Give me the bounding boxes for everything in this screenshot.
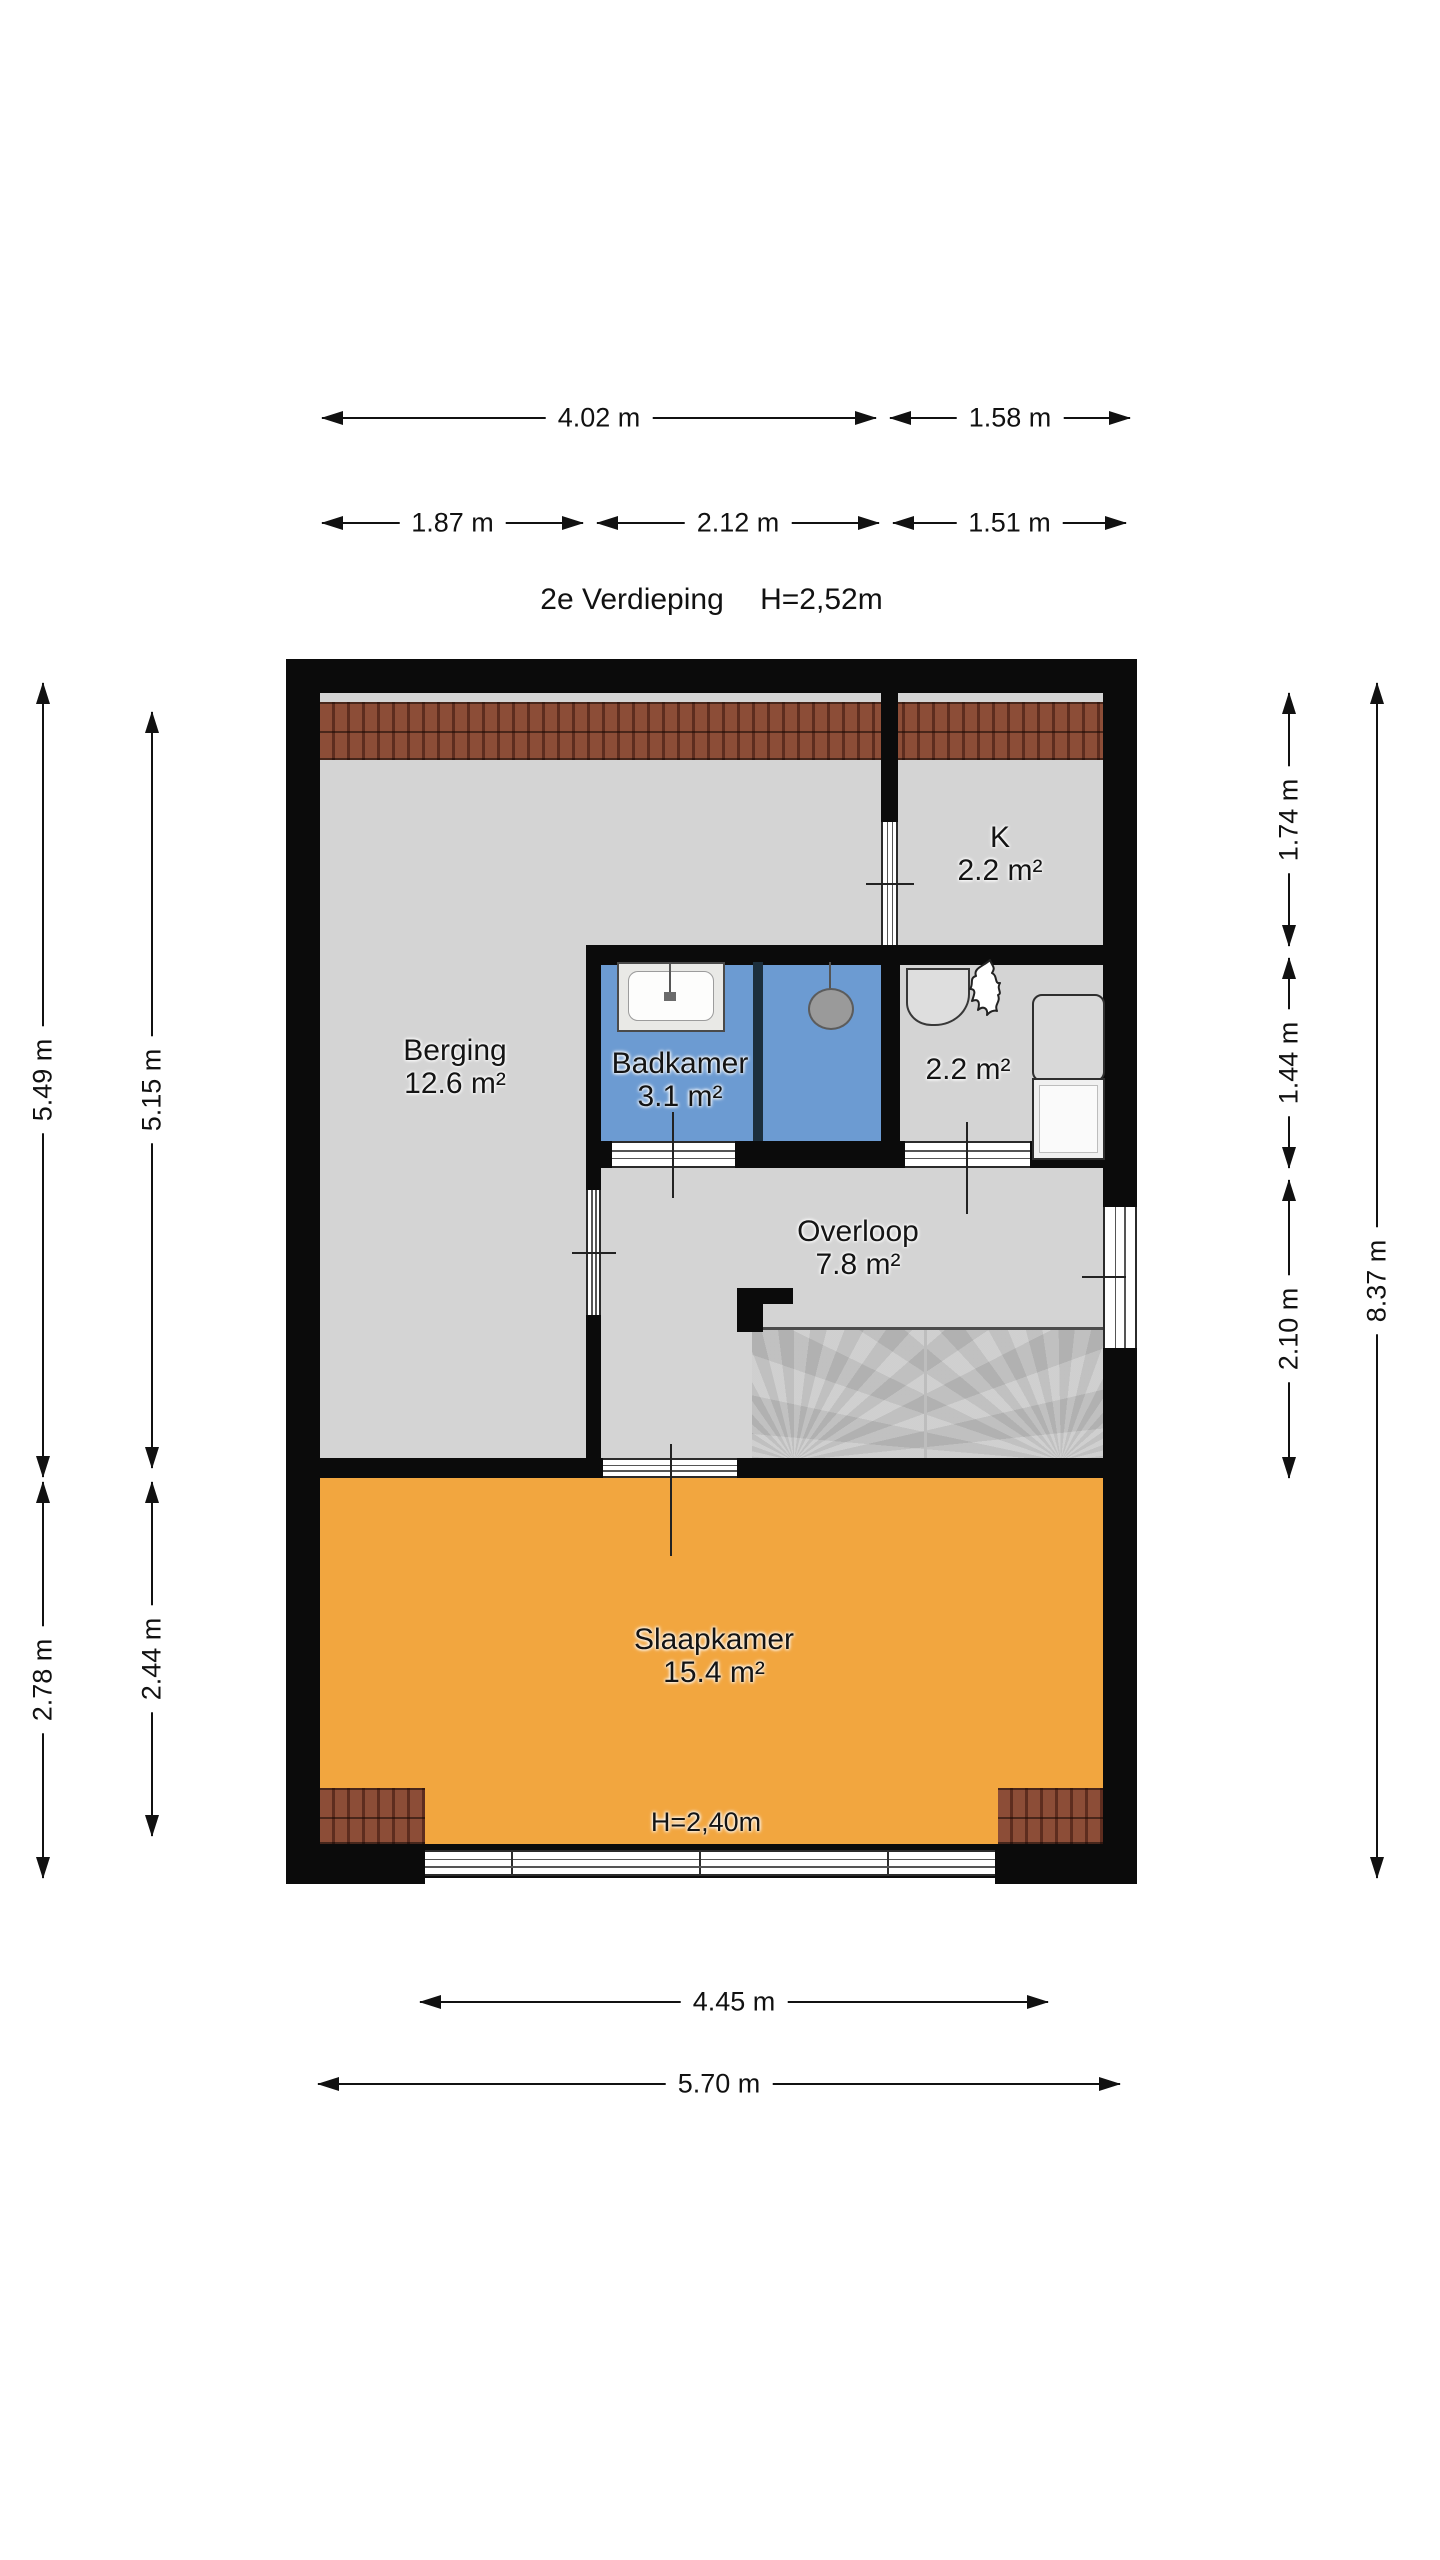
dim-right-outer: 8.37 m bbox=[1362, 683, 1392, 1878]
room-name: Badkamer bbox=[612, 1047, 749, 1080]
arrow-left-icon bbox=[419, 1995, 441, 2009]
dim-value: 1.44 m bbox=[1274, 1010, 1305, 1117]
wall-corner-bottom-left bbox=[286, 1844, 425, 1884]
arrow-left-icon bbox=[321, 516, 343, 530]
dim-left-inner-bottom: 2.44 m bbox=[137, 1482, 167, 1836]
dim-value: 2.78 m bbox=[28, 1627, 59, 1734]
dim-value: 1.87 m bbox=[399, 508, 506, 539]
window-tick bbox=[866, 883, 914, 885]
arrow-right-icon bbox=[1105, 516, 1127, 530]
arrow-up-icon bbox=[145, 711, 159, 733]
arrow-left-icon bbox=[892, 516, 914, 530]
dim-value: 5.49 m bbox=[28, 1027, 59, 1134]
door-tick bbox=[672, 1112, 674, 1198]
dim-left-outer-bottom: 2.78 m bbox=[28, 1482, 58, 1878]
dim-value: 2.10 m bbox=[1274, 1276, 1305, 1383]
dim-bottom-inner: 4.45 m bbox=[420, 1987, 1048, 2017]
room-area: 2.2 m² bbox=[925, 1053, 1010, 1086]
arrow-down-icon bbox=[1370, 1857, 1384, 1879]
wall-corner-bottom-right bbox=[995, 1844, 1137, 1884]
dim-right-inner-1: 1.74 m bbox=[1274, 693, 1304, 946]
dim-value: 4.45 m bbox=[681, 1987, 788, 2018]
sink-icon bbox=[617, 962, 725, 1032]
window-mullion bbox=[511, 1850, 514, 1876]
dim-value: 5.15 m bbox=[137, 1037, 168, 1144]
wall-outer-top bbox=[286, 659, 1137, 693]
slaapkamer-ceiling-height: H=2,40m bbox=[651, 1806, 761, 1839]
arrow-up-icon bbox=[1282, 957, 1296, 979]
dim-value: 4.02 m bbox=[546, 403, 653, 434]
room-area: 3.1 m² bbox=[612, 1080, 749, 1113]
dim-top-inner-3: 1.51 m bbox=[893, 508, 1126, 538]
arrow-right-icon bbox=[855, 411, 877, 425]
dim-top-inner-2: 2.12 m bbox=[597, 508, 879, 538]
room-label-berging: Berging 12.6 m² bbox=[403, 1034, 506, 1100]
room-label-badkamer: Badkamer 3.1 m² bbox=[612, 1047, 749, 1113]
dim-left-inner-top: 5.15 m bbox=[137, 712, 167, 1468]
room-label-kast: 2.2 m² bbox=[925, 1053, 1010, 1086]
floor-name: 2e Verdieping bbox=[540, 583, 724, 616]
room-area: 15.4 m² bbox=[634, 1656, 794, 1689]
room-name: K bbox=[957, 821, 1042, 854]
room-name: Slaapkamer bbox=[634, 1623, 794, 1656]
room-label-slaapkamer: Slaapkamer 15.4 m² bbox=[634, 1623, 794, 1689]
arrow-down-icon bbox=[1282, 1457, 1296, 1479]
room-name: Overloop bbox=[797, 1215, 919, 1248]
window-slaapkamer-bottom bbox=[425, 1850, 995, 1876]
window-tick bbox=[572, 1252, 616, 1254]
dim-right-inner-2: 1.44 m bbox=[1274, 958, 1304, 1168]
arrow-right-icon bbox=[562, 516, 584, 530]
arrow-up-icon bbox=[36, 682, 50, 704]
arrow-down-icon bbox=[145, 1815, 159, 1837]
wall-k-room bbox=[881, 659, 898, 822]
arrow-left-icon bbox=[321, 411, 343, 425]
door-tick bbox=[966, 1122, 968, 1214]
room-area: 7.8 m² bbox=[797, 1248, 919, 1281]
room-area: 12.6 m² bbox=[403, 1067, 506, 1100]
wall-badkamer-shower bbox=[753, 962, 763, 1141]
dim-top-inner-1: 1.87 m bbox=[322, 508, 583, 538]
dim-value: 1.58 m bbox=[957, 403, 1064, 434]
arrow-down-icon bbox=[36, 1456, 50, 1478]
floor-ceiling-height: H=2,52m bbox=[760, 583, 883, 616]
wall-shower-kast bbox=[881, 945, 900, 1168]
arrow-up-icon bbox=[36, 1481, 50, 1503]
arrow-right-icon bbox=[858, 516, 880, 530]
dim-value: 2.12 m bbox=[685, 508, 792, 539]
plan-title: 2e Verdieping H=2,52m bbox=[286, 583, 1137, 617]
arrow-left-icon bbox=[317, 2077, 339, 2091]
dim-value: 2.44 m bbox=[137, 1606, 168, 1713]
dim-top-outer-left: 4.02 m bbox=[322, 403, 876, 433]
arrow-up-icon bbox=[1282, 692, 1296, 714]
roof-tiles-bottom-left bbox=[320, 1788, 425, 1844]
room-label-overloop: Overloop 7.8 m² bbox=[797, 1215, 919, 1281]
arrow-down-icon bbox=[1282, 925, 1296, 947]
arrow-left-icon bbox=[596, 516, 618, 530]
arrow-right-icon bbox=[1027, 1995, 1049, 2009]
arrow-right-icon bbox=[1099, 2077, 1121, 2091]
dim-value: 5.70 m bbox=[666, 2069, 773, 2100]
window-mullion bbox=[887, 1850, 890, 1876]
wall-stair-stub-v bbox=[737, 1288, 763, 1332]
cabinet-top-icon bbox=[1032, 994, 1105, 1082]
arrow-left-icon bbox=[889, 411, 911, 425]
floorplan-canvas: 4.02 m 1.58 m 1.87 m 2.12 m 1.51 m 2e Ve… bbox=[0, 0, 1440, 2560]
dim-top-outer-right: 1.58 m bbox=[890, 403, 1130, 433]
arrow-up-icon bbox=[1370, 682, 1384, 704]
flame-icon bbox=[964, 958, 1008, 1016]
room-label-k: K 2.2 m² bbox=[957, 821, 1042, 887]
arrow-down-icon bbox=[36, 1857, 50, 1879]
arrow-up-icon bbox=[145, 1481, 159, 1503]
dim-bottom-outer: 5.70 m bbox=[318, 2069, 1120, 2099]
room-name: Berging bbox=[403, 1034, 506, 1067]
window-tick bbox=[1082, 1276, 1126, 1278]
dim-value: 1.51 m bbox=[956, 508, 1063, 539]
dim-value: 8.37 m bbox=[1362, 1227, 1393, 1334]
window-mullion bbox=[699, 1850, 702, 1876]
arrow-up-icon bbox=[1282, 1179, 1296, 1201]
room-area: 2.2 m² bbox=[957, 854, 1042, 887]
roof-tiles-bottom-right bbox=[998, 1788, 1103, 1844]
door-tick bbox=[670, 1444, 672, 1556]
dim-left-outer-top: 5.49 m bbox=[28, 683, 58, 1477]
shower-head-icon bbox=[808, 988, 854, 1030]
dim-right-inner-3: 2.10 m bbox=[1274, 1180, 1304, 1478]
cabinet-bottom-icon bbox=[1032, 1078, 1105, 1160]
roof-tiles-top bbox=[320, 702, 1103, 760]
faucet-knob bbox=[664, 992, 676, 1001]
staircase bbox=[752, 1327, 1103, 1461]
arrow-down-icon bbox=[145, 1447, 159, 1469]
arrow-right-icon bbox=[1109, 411, 1131, 425]
wall-outer-left bbox=[286, 659, 320, 1878]
dim-value: 1.74 m bbox=[1274, 766, 1305, 873]
arrow-down-icon bbox=[1282, 1147, 1296, 1169]
